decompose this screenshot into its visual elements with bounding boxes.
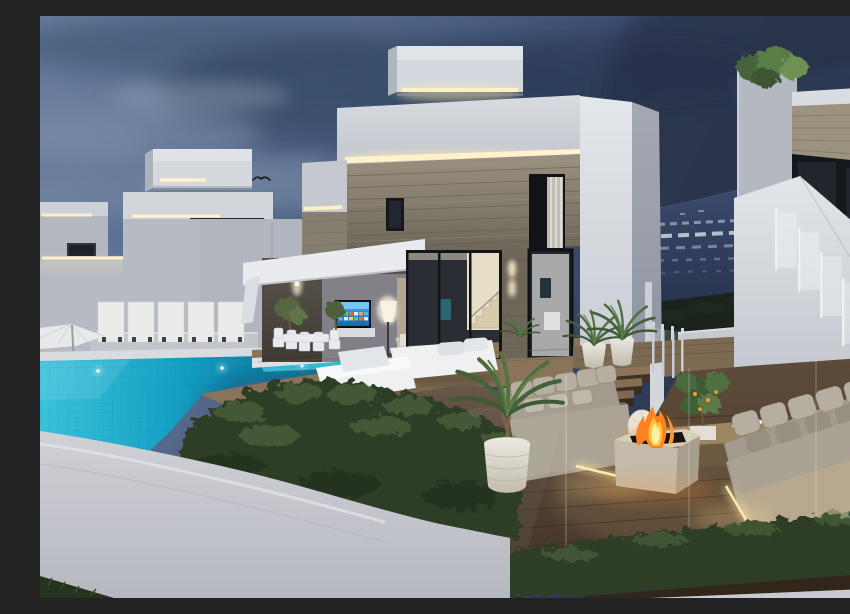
- rooftop-box: [388, 46, 523, 101]
- dining-table: [283, 334, 329, 342]
- downlight: [508, 279, 516, 297]
- staircase: [467, 250, 503, 330]
- downlight: [508, 260, 516, 278]
- right-villa: [734, 47, 850, 388]
- stone-column: [502, 248, 529, 361]
- curtain: [547, 177, 563, 248]
- window-large: [529, 174, 565, 251]
- white-pot: [484, 437, 530, 493]
- villa-render: [40, 16, 850, 598]
- wall-art: [540, 278, 551, 298]
- credenza: [333, 328, 375, 337]
